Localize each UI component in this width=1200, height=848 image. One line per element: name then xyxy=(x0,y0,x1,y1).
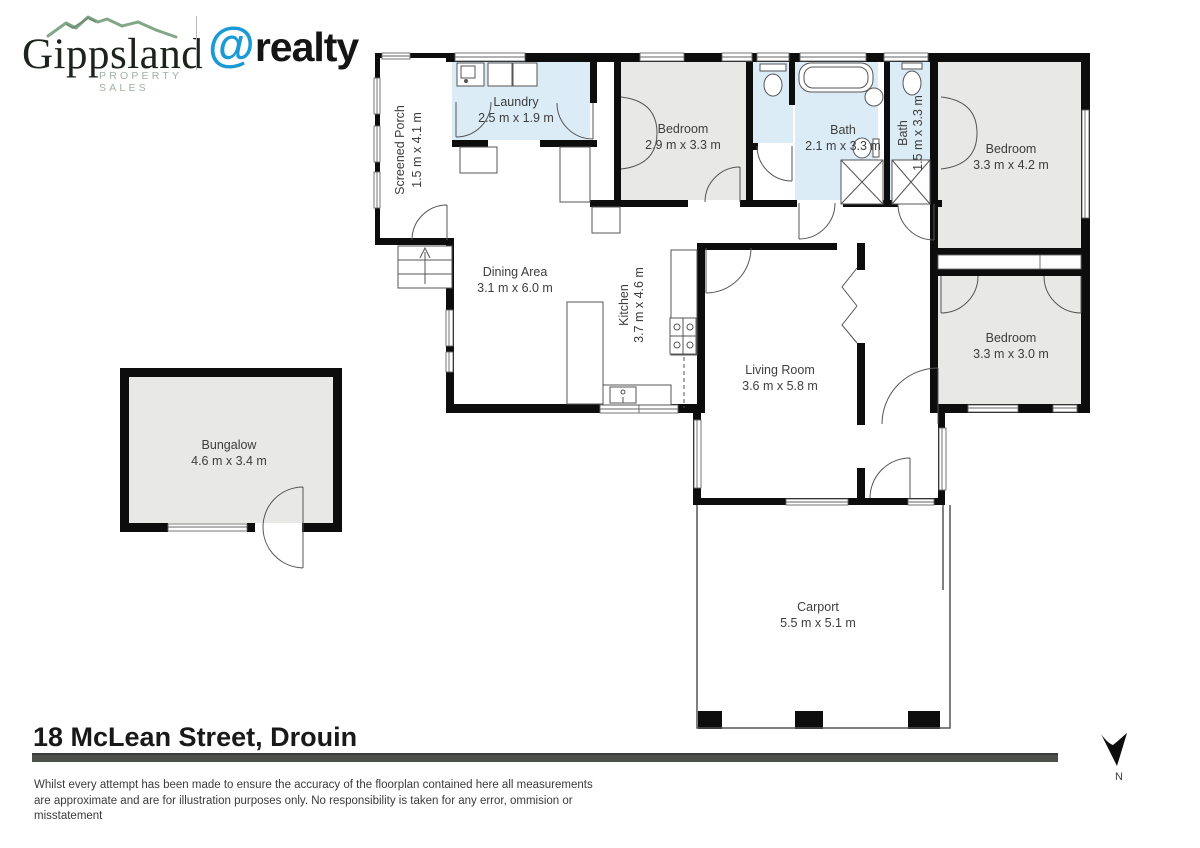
room-label-bedroom-2-dims: 3.3 m x 4.2 m xyxy=(973,158,1049,172)
room-label-bath-second-name: Bath xyxy=(896,120,910,146)
room-label-bedroom-2-name: Bedroom xyxy=(986,142,1037,156)
north-label: N xyxy=(1115,771,1123,783)
room-label-kitchen-name: Kitchen xyxy=(617,284,631,326)
floorplan-page: Gippsland PROPERTY SALES @realty xyxy=(0,0,1200,848)
room-label-dining-name: Dining Area xyxy=(483,265,548,279)
room-label-carport-name: Carport xyxy=(797,600,839,614)
disclaimer-line-1: Whilst every attempt has been made to en… xyxy=(34,778,593,794)
room-label-bath-main-dims: 2.1 m x 3.3 m xyxy=(805,139,881,153)
room-label-laundry-dims: 2.5 m x 1.9 m xyxy=(478,111,554,125)
room-label-living-dims: 3.6 m x 5.8 m xyxy=(742,379,818,393)
page-title-address: 18 McLean Street, Drouin xyxy=(33,722,357,753)
room-label-bedroom-3-name: Bedroom xyxy=(986,331,1037,345)
room-label-carport-dims: 5.5 m x 5.1 m xyxy=(780,616,856,630)
title-rule xyxy=(32,753,1058,762)
room-label-living-name: Living Room xyxy=(745,363,814,377)
disclaimer-text: Whilst every attempt has been made to en… xyxy=(34,778,593,825)
room-label-bedroom-3-dims: 3.3 m x 3.0 m xyxy=(973,347,1049,361)
room-label-bath-second-dims: 1.5 m x 3.3 m xyxy=(911,95,925,171)
room-label-dining-dims: 3.1 m x 6.0 m xyxy=(477,281,553,295)
room-label-bungalow-dims: 4.6 m x 3.4 m xyxy=(191,454,267,468)
room-label-laundry-name: Laundry xyxy=(493,95,539,109)
room-label-bath-main-name: Bath xyxy=(830,123,856,137)
north-arrow-icon xyxy=(1101,733,1127,766)
north-compass: N xyxy=(1101,733,1127,783)
floorplan-canvas: Screened Porch 1.5 m x 4.1 m Laundry 2.5… xyxy=(0,0,1200,848)
disclaimer-line-3: misstatement xyxy=(34,809,593,825)
room-label-bedroom-1-name: Bedroom xyxy=(658,122,709,136)
room-label-bedroom-1-dims: 2.9 m x 3.3 m xyxy=(645,138,721,152)
room-label-screened-porch-name: Screened Porch xyxy=(393,105,407,195)
room-label-kitchen-dims: 3.7 m x 4.6 m xyxy=(632,267,646,343)
room-label-bungalow-name: Bungalow xyxy=(202,438,258,452)
disclaimer-line-2: are approximate and are for illustration… xyxy=(34,794,593,810)
room-label-screened-porch-dims: 1.5 m x 4.1 m xyxy=(410,112,424,188)
